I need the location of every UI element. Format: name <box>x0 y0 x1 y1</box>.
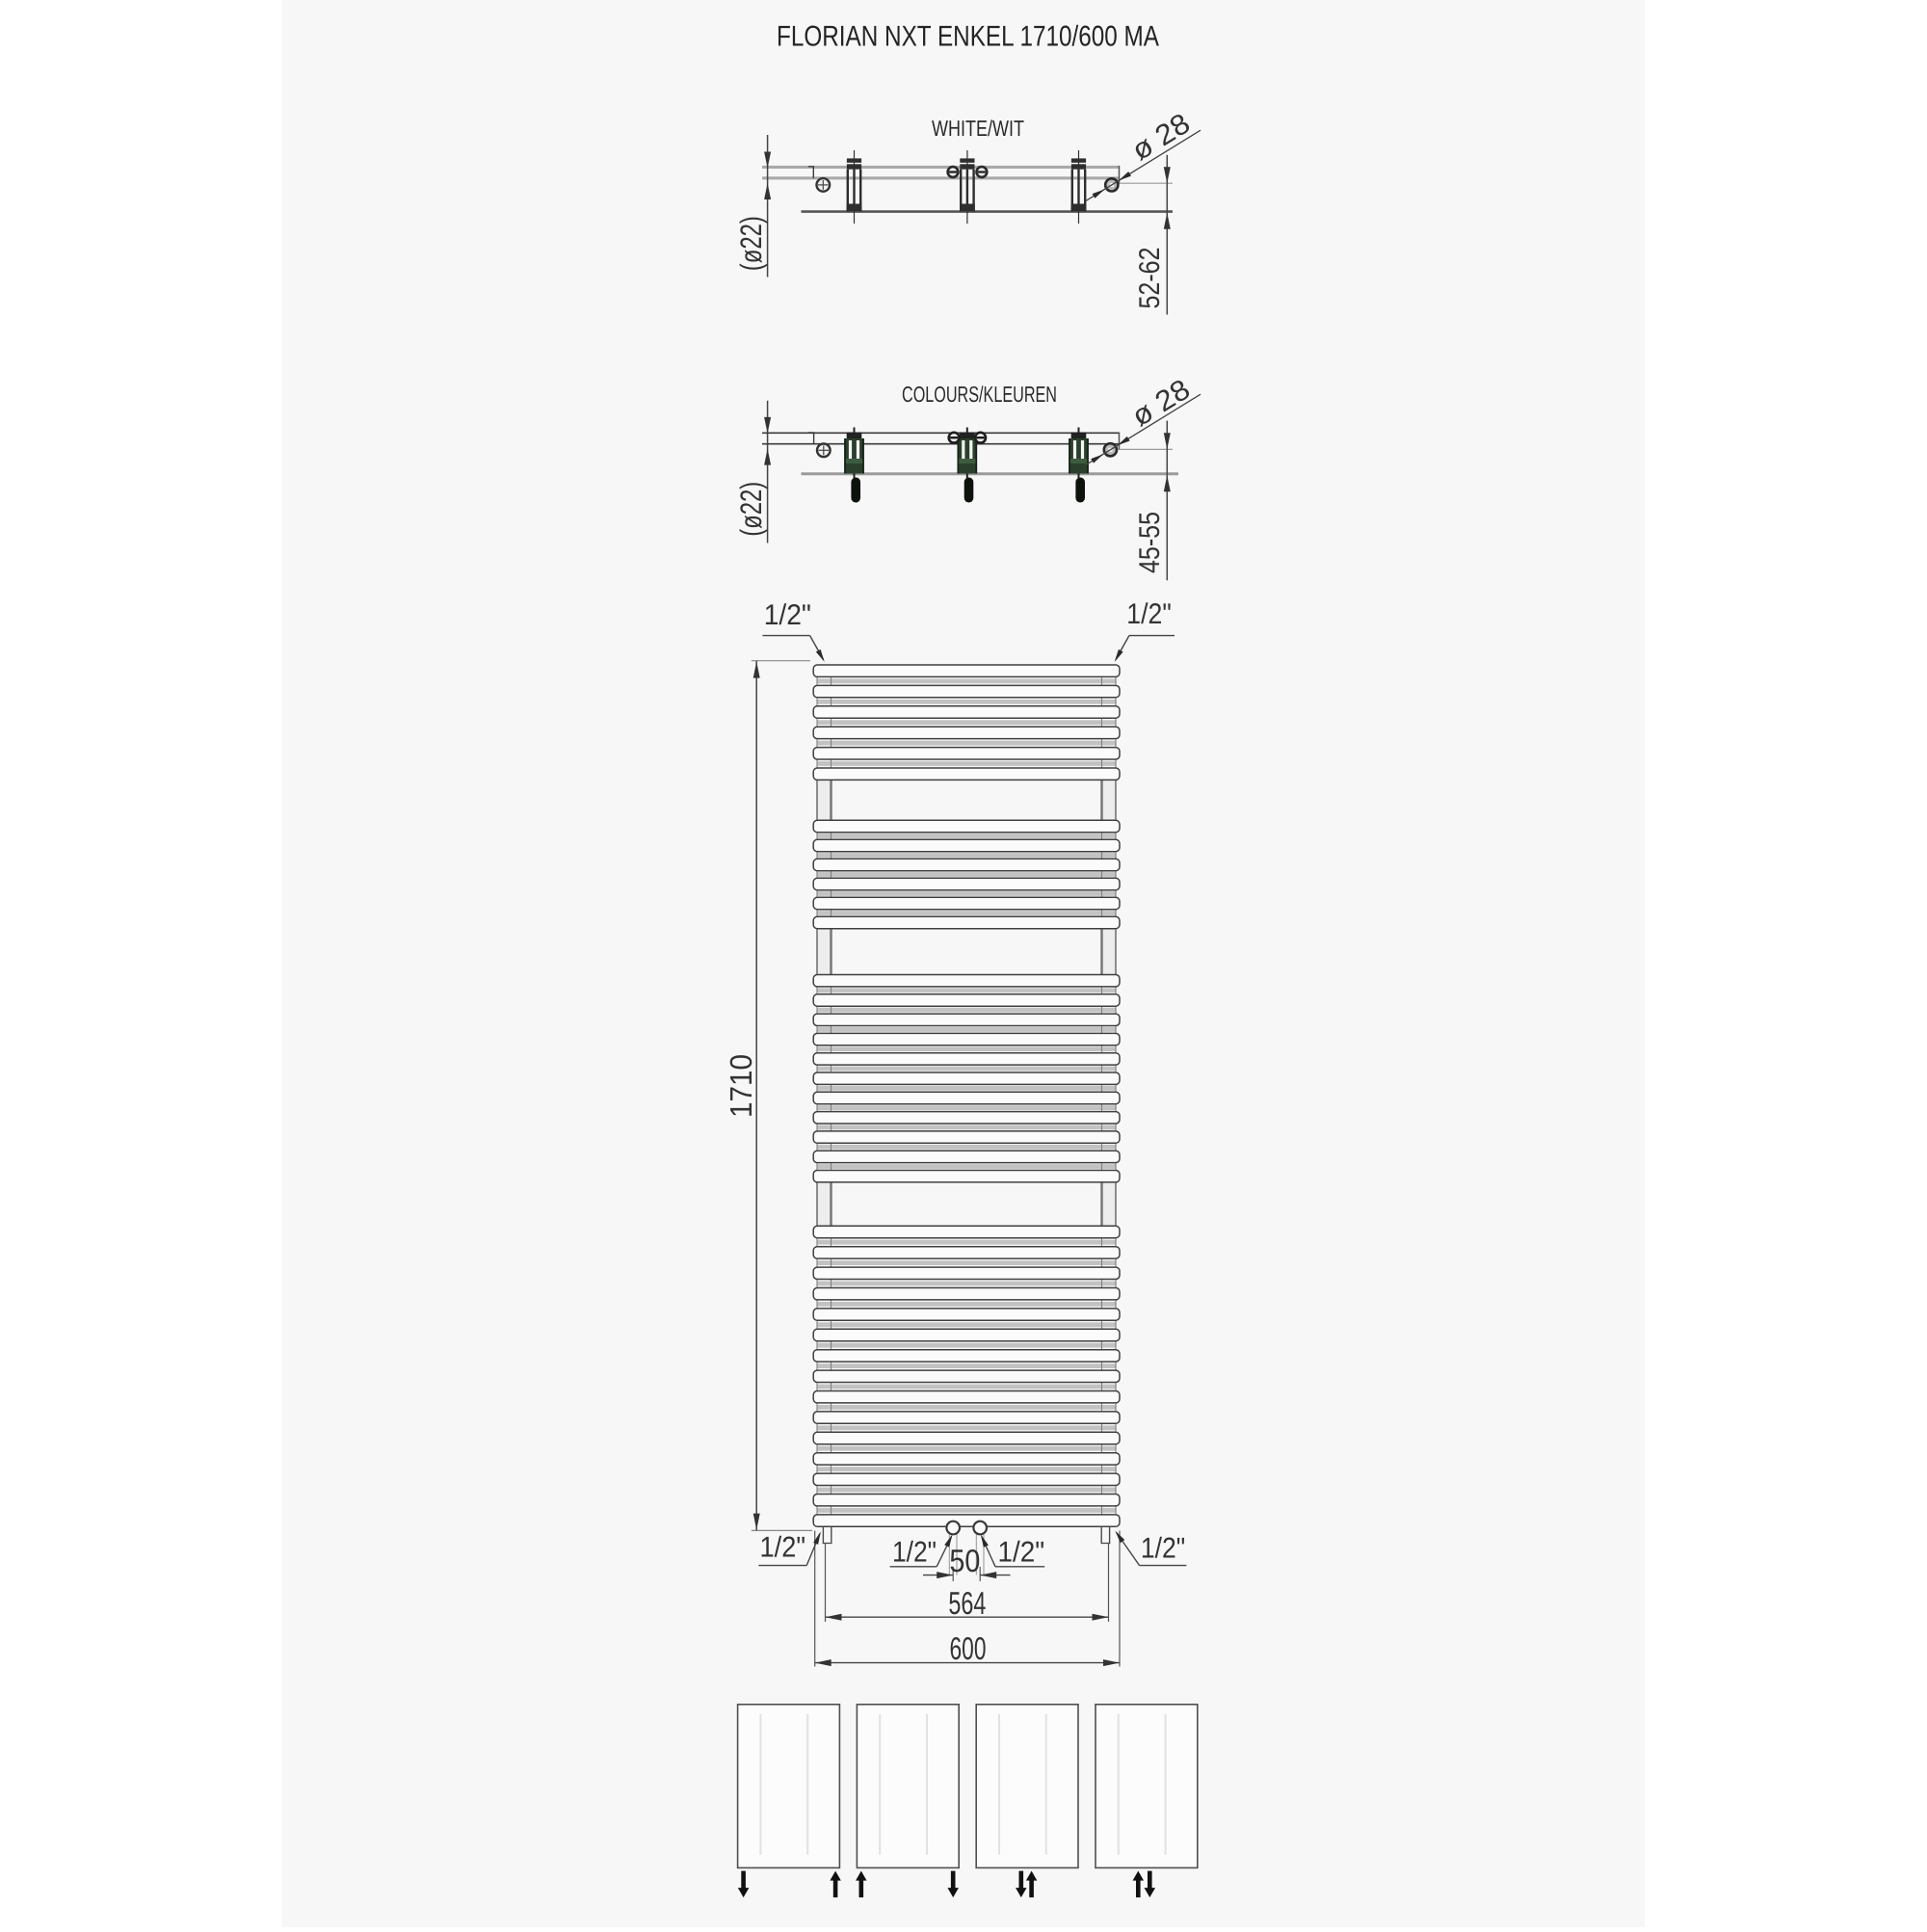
svg-text:(ø22): (ø22) <box>734 482 768 537</box>
svg-text:1/2": 1/2" <box>760 1532 806 1564</box>
svg-text:564: 564 <box>948 1585 986 1621</box>
svg-text:WHITE/WIT: WHITE/WIT <box>932 116 1024 141</box>
svg-text:COLOURS/KLEUREN: COLOURS/KLEUREN <box>902 382 1057 407</box>
svg-text:1/2": 1/2" <box>1126 598 1172 630</box>
svg-text:52-62: 52-62 <box>1134 248 1166 309</box>
svg-text:45-55: 45-55 <box>1134 512 1166 573</box>
svg-text:600: 600 <box>950 1630 987 1666</box>
svg-text:50: 50 <box>949 1543 980 1578</box>
svg-text:(ø22): (ø22) <box>734 216 768 271</box>
svg-text:1/2": 1/2" <box>892 1537 937 1569</box>
svg-text:FLORIAN NXT ENKEL 1710/600 MA: FLORIAN NXT ENKEL 1710/600 MA <box>777 21 1159 53</box>
svg-text:1/2": 1/2" <box>998 1537 1045 1569</box>
svg-text:1710: 1710 <box>724 1054 758 1118</box>
svg-text:1/2": 1/2" <box>764 599 811 631</box>
svg-text:1/2": 1/2" <box>1141 1533 1185 1565</box>
